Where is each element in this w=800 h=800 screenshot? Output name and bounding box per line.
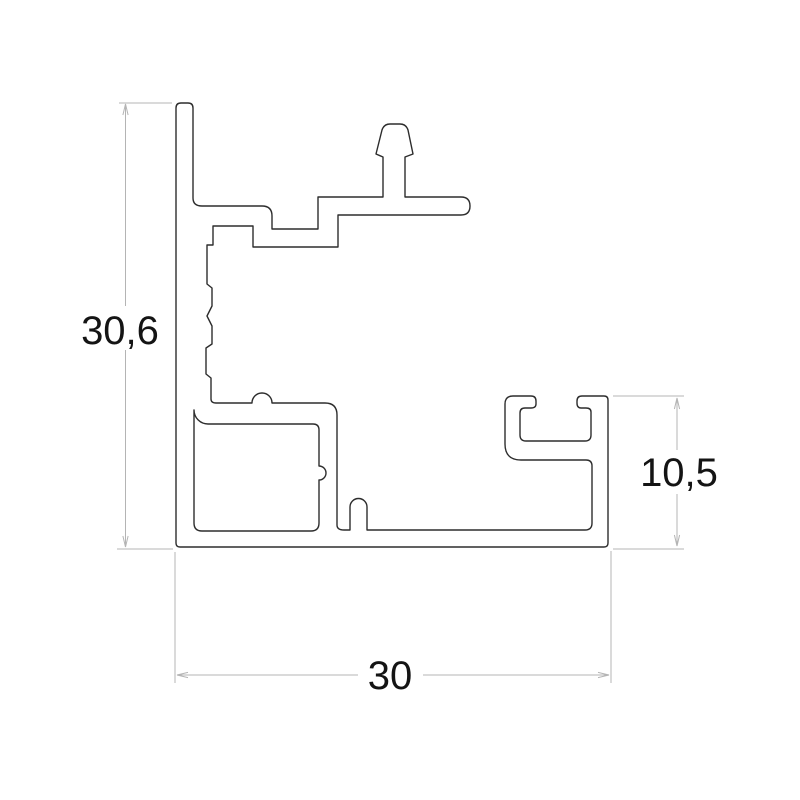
- dimension-label-overall-height: 30,6: [81, 309, 159, 353]
- profile-inner-cavity: [194, 410, 326, 531]
- dimension-annotations: [117, 103, 684, 683]
- profile-drawing-svg: 30,6 10,5 30: [0, 0, 800, 800]
- profile-outer-contour: [176, 103, 608, 547]
- dimension-label-overall-width: 30: [368, 654, 413, 698]
- profile-geometry: [176, 103, 608, 547]
- technical-drawing-canvas: 30,6 10,5 30: [0, 0, 800, 800]
- dimension-label-right-height: 10,5: [640, 451, 718, 495]
